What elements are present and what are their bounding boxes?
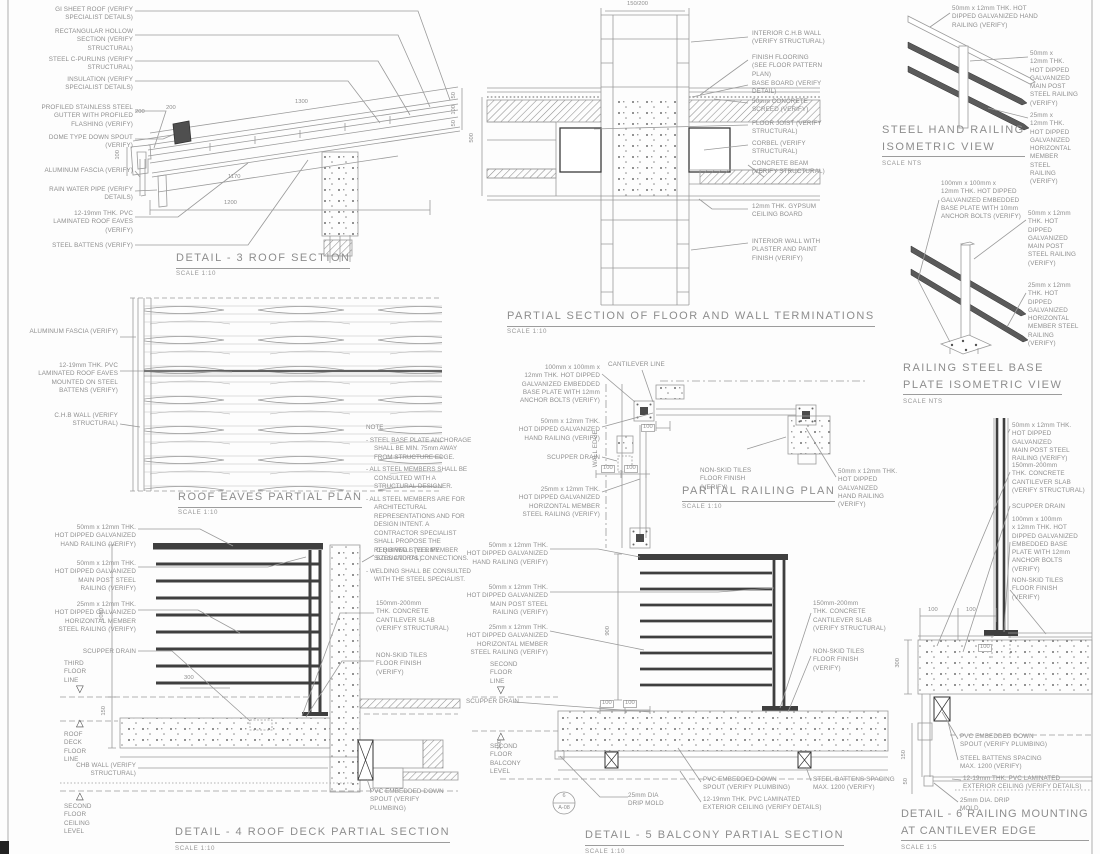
callout-label: INSULATION (VERIFY SPECIALIST DETAILS): [23, 76, 133, 93]
callout-label: RAIN WATER PIPE (VERIFY DETAILS): [23, 186, 133, 203]
callout-label: PVC EMBEDDED DOWN SPOUT (VERIFY PLUMBING…: [370, 788, 458, 813]
callout-label: 150mm-200mm THK. CONCRETE CANTILEVER SLA…: [813, 600, 895, 633]
dim-label: 100: [452, 105, 458, 115]
callout-label: BASE BOARD (VERIFY DETAIL): [752, 80, 847, 97]
callout-label: DOME TYPE DOWN SPOUT (VERIFY): [23, 134, 133, 151]
note-item: - STEEL BASE PLATE ANCHORAGE SHALL BE MI…: [366, 437, 472, 463]
note-title: NOTE: [366, 424, 472, 433]
callout-label: 50mm x 12mm THK. HOT DIPPED GALVANIZED H…: [28, 524, 136, 549]
dim-label: 100: [641, 424, 655, 432]
callout-label: SCUPPER DRAIN: [498, 454, 600, 462]
dim-label: 150/200: [627, 2, 648, 8]
level-marker-down-icon: ▽: [76, 685, 84, 695]
detail-title: DETAIL - 4 ROOF DECK PARTIAL SECTION: [175, 824, 450, 843]
callout-label: CORBEL (VERIFY STRUCTURAL): [752, 140, 847, 157]
dim-label: 100: [601, 465, 615, 473]
callout-label: CONCRETE BEAM (VERIFY STRUCTURAL): [752, 160, 847, 177]
dim-label: 50: [452, 120, 458, 126]
detail-scale: SCALE 1:10: [176, 270, 216, 277]
callout-label: 50mm CONCRETE SCREED (VERIFY): [752, 98, 847, 115]
callout-label: 150mm-200mm THK. CONCRETE CANTILEVER SLA…: [1012, 462, 1094, 495]
dim-label: 100: [966, 608, 976, 614]
dim-label: 100: [978, 644, 992, 652]
dim-label: 900: [606, 626, 612, 636]
dim-label: 100: [928, 608, 938, 614]
detail-title: DETAIL - 3 ROOF SECTION: [176, 250, 350, 269]
note-item: - WELDING SHALL BE CONSULTED WITH THE ST…: [366, 568, 472, 585]
dim-label: 150: [102, 706, 108, 716]
detail-scale: SCALE NTS: [903, 398, 943, 405]
callout-label: 25mm x 12mm THK. HOT DIPPED GALVANIZED H…: [1030, 112, 1090, 187]
dim-label: 100: [623, 700, 637, 708]
dim-label: 100: [600, 700, 614, 708]
dim-label: 150: [902, 750, 908, 760]
detail-scale: SCALE 1:5: [901, 844, 937, 851]
callout-label: FLOOR JOIST (VERIFY STRUCTURAL): [752, 120, 847, 137]
architectural-detail-sheet: GI SHEET ROOF (VERIFY SPECIALIST DETAILS…: [0, 0, 1100, 854]
wall-edge-label: WALL EDGE: [592, 430, 600, 467]
level-label: SECOND FLOOR CEILING LEVEL: [64, 803, 109, 836]
dim-label: 50: [452, 92, 458, 98]
callout-label: NON-SKID TILES FLOOR FINISH (VERIFY): [1012, 577, 1090, 602]
callout-label: C.H.B WALL (VERIFY STRUCTURAL): [8, 412, 118, 429]
callout-label: FINISH FLOORING (SEE FLOOR PATTERN PLAN): [752, 54, 847, 79]
detail-ref-number: 6: [554, 794, 574, 800]
callout-label: 50mm x 12mm THK. HOT DIPPED GALVANIZED H…: [838, 468, 910, 509]
callout-label: PROFILED STAINLESS STEEL GUTTER WITH PRO…: [23, 104, 133, 129]
detail-title: PARTIAL RAILING PLAN: [682, 483, 835, 502]
callout-label: SCUPPER DRAIN: [1012, 503, 1090, 511]
level-marker-up-icon: △: [76, 719, 84, 729]
dim-label: 1170: [228, 175, 240, 181]
callout-label: 100mm x 100mm x 12mm THK. HOT DIPPED GAL…: [941, 180, 1031, 221]
detail-scale: SCALE 1:10: [507, 328, 547, 335]
callout-label: CHB WALL (VERIFY STRUCTURAL): [28, 762, 136, 779]
callout-label: SCUPPER DRAIN: [466, 698, 546, 706]
callout-label: 25mm x 12mm THK. HOT DIPPED GALVANIZED H…: [498, 486, 600, 519]
dim-label: 300: [896, 658, 902, 668]
callout-label: 12-19mm THK. PVC LAMINATED ROOF EAVES (V…: [23, 210, 133, 235]
note-item: - ALL STEEL MEMBERS SHALL BE CONSULTED W…: [366, 466, 472, 492]
callout-label: RECTANGULAR HOLLOW SECTION (VERIFY STRUC…: [23, 28, 133, 53]
detail-title: ROOF EAVES PARTIAL PLAN: [178, 489, 362, 508]
dim-label: 1050: [100, 608, 106, 621]
callout-label: ALUMINUM FASCIA (VERIFY): [8, 328, 118, 336]
callout-label: STEEL BATTENS SPACING MAX. 1200 (VERIFY): [960, 755, 1068, 772]
detail-scale: SCALE 1:10: [178, 509, 218, 516]
callout-label: INTERIOR C.H.B WALL (VERIFY STRUCTURAL): [752, 30, 847, 47]
detail-scale: SCALE 1:10: [585, 848, 625, 854]
callout-label: NON-SKID TILES FLOOR FINISH (VERIFY): [813, 648, 893, 673]
callout-label: ALUMINUM FASCIA (VERIFY): [23, 167, 133, 175]
callout-label: 50mm x 12mm THK. HOT DIPPED GALVANIZED H…: [452, 542, 548, 567]
detail-scale: SCALE NTS: [882, 160, 922, 167]
callout-label: 50mm x 12mm THK. HOT DIPPED GALVANIZED M…: [28, 560, 136, 593]
callout-label: SCUPPER DRAIN: [28, 648, 136, 656]
callout-label: PVC EMBEDDED DOWN SPOUT (VERIFY PLUMBING…: [703, 776, 813, 793]
callout-label: STEEL C-PURLINS (VERIFY STRUCTURAL): [23, 56, 133, 73]
dim-label: 200: [135, 110, 145, 116]
level-label: SECOND FLOOR LINE: [490, 661, 538, 686]
callout-label: INTERIOR WALL WITH PLASTER AND PAINT FIN…: [752, 238, 847, 263]
callout-label: 12mm THK. GYPSUM CEILING BOARD: [752, 203, 847, 220]
callout-label: 100mm x 100mm x 12mm THK. HOT DIPPED GAL…: [1012, 516, 1092, 574]
level-marker-down-icon: ▽: [497, 686, 505, 696]
detail-title: DETAIL - 6 RAILING MOUNTING AT CANTILEVE…: [901, 806, 1089, 841]
dim-label: 1300: [295, 100, 308, 106]
callout-label: 100mm x 100mm x 12mm THK. HOT DIPPED GAL…: [498, 364, 600, 405]
level-label: THIRD FLOOR LINE: [64, 660, 109, 685]
callout-label: 50mm x 12mm THK. HOT DIPPED GALVANIZED M…: [1030, 50, 1090, 108]
callout-label: 50mm x 12mm THK. HOT DIPPED GALVANIZED H…: [498, 418, 600, 443]
callout-label: STEEL BATTENS (VERIFY): [23, 242, 133, 250]
detail-title: PARTIAL SECTION OF FLOOR AND WALL TERMIN…: [507, 308, 875, 327]
callout-label: 50mm x 12mm THK. HOT DIPPED GALVANIZED M…: [1012, 422, 1092, 463]
callout-label: 25mm x 12mm THK. HOT DIPPED GALVANIZED H…: [1028, 282, 1090, 348]
detail-title: RAILING STEEL BASE PLATE ISOMETRIC VIEW: [903, 360, 1062, 395]
dim-label: 1200: [224, 201, 237, 207]
callout-label: C.H.B WALL (VERIFY STRUCTURAL): [376, 547, 456, 564]
callout-label: 25mm x 12mm THK. HOT DIPPED GALVANIZED H…: [28, 601, 136, 634]
detail-scale: SCALE 1:10: [682, 503, 722, 510]
detail-ref-sheet: A-08: [551, 806, 577, 812]
detail-title: STEEL HAND RAILING ISOMETRIC VIEW: [882, 122, 1025, 157]
callout-label: 25mm x 12mm THK. HOT DIPPED GALVANIZED H…: [452, 624, 548, 657]
detail-scale: SCALE 1:10: [175, 845, 215, 852]
callout-label: NON-SKID TILES FLOOR FINISH (VERIFY): [376, 652, 456, 677]
callout-label: 50mm x 12mm THK. HOT DIPPED GALVANIZED M…: [1028, 210, 1090, 268]
dim-label: 500: [470, 133, 476, 143]
dim-label: 100: [624, 465, 638, 473]
level-marker-up-icon: △: [76, 792, 84, 802]
level-label: ROOF DECK FLOOR LINE: [64, 731, 109, 764]
dim-label: 300: [498, 740, 504, 750]
callout-label: 12-19mm THK. PVC LAMINATED ROOF EAVES MO…: [8, 362, 118, 395]
detail-title: DETAIL - 5 BALCONY PARTIAL SECTION: [585, 827, 844, 846]
cantilever-line-label: CANTILEVER LINE: [608, 361, 678, 369]
dim-label: 50: [904, 778, 910, 784]
callout-label: GI SHEET ROOF (VERIFY SPECIALIST DETAILS…: [23, 6, 133, 23]
dim-label: 200: [166, 106, 176, 112]
callout-label: PVC EMBEDDED DOWN SPOUT (VERIFY PLUMBING…: [960, 733, 1062, 750]
callout-label: 25mm DIA DRIP MOLD: [628, 792, 680, 809]
dim-label: 100: [116, 150, 122, 160]
callout-label: 50mm x 12mm THK. HOT DIPPED GALVANIZED H…: [952, 5, 1047, 30]
callout-label: 50mm x 12mm THK. HOT DIPPED GALVANIZED M…: [452, 584, 548, 617]
callout-label: 12-19mm THK. PVC LAMINATED EXTERIOR CEIL…: [703, 796, 828, 813]
dim-label: 300: [184, 676, 194, 682]
callout-label: 150mm-200mm THK. CONCRETE CANTILEVER SLA…: [376, 600, 458, 633]
callout-label: 12-19mm THK. PVC LAMINATED EXTERIOR CEIL…: [963, 775, 1088, 792]
